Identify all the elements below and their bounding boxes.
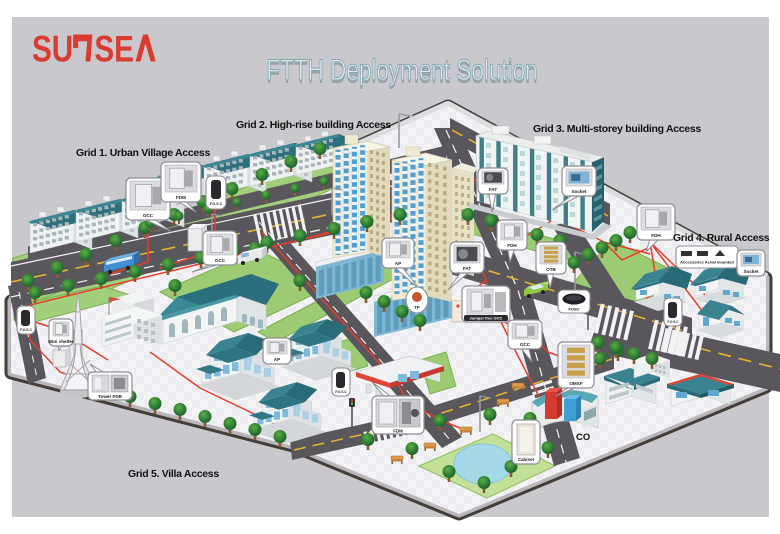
svg-text:FAT: FAT: [489, 187, 498, 192]
svg-text:Jumper free OCC: Jumper free OCC: [470, 316, 503, 321]
svg-text:Cabinet: Cabinet: [518, 457, 535, 462]
svg-text:OCC: OCC: [520, 342, 531, 347]
svg-text:Accessories Aerial mounted: Accessories Aerial mounted: [680, 260, 734, 265]
svg-text:OCC: OCC: [215, 258, 226, 263]
svg-text:FOSC: FOSC: [568, 307, 579, 312]
svg-text:Grid 1. Urban Village Access: Grid 1. Urban Village Access: [76, 147, 210, 159]
svg-text:CO: CO: [576, 432, 590, 443]
svg-text:OTB: OTB: [546, 267, 556, 272]
svg-text:Socket: Socket: [743, 269, 759, 274]
svg-text:Grid 4. Rural Access: Grid 4. Rural Access: [673, 232, 770, 244]
svg-text:Socket: Socket: [571, 189, 587, 194]
svg-text:SE: SE: [94, 28, 134, 70]
svg-text:FDH: FDH: [651, 233, 661, 238]
svg-text:SU: SU: [32, 28, 73, 70]
svg-text:Tower FDB: Tower FDB: [98, 394, 123, 399]
svg-text:Grid 2. High-rise building Acc: Grid 2. High-rise building Access: [236, 119, 391, 131]
svg-text:F.O.S.C: F.O.S.C: [20, 328, 32, 332]
svg-text:F.O.S.C: F.O.S.C: [210, 202, 223, 206]
svg-text:AP: AP: [395, 261, 401, 266]
svg-text:AP: AP: [274, 357, 280, 362]
svg-text:Grid 3. Multi-storey building: Grid 3. Multi-storey building Access: [533, 123, 701, 135]
svg-text:FTTH Deployment Solution: FTTH Deployment Solution: [266, 53, 537, 87]
svg-text:FDM: FDM: [176, 195, 186, 200]
svg-text:FDM: FDM: [393, 429, 403, 434]
svg-text:TP: TP: [414, 305, 420, 310]
svg-text:F.O.S.C: F.O.S.C: [667, 320, 679, 324]
svg-text:FDH: FDH: [507, 243, 517, 248]
svg-text:OCC: OCC: [143, 213, 154, 218]
svg-text:OMXF: OMXF: [569, 381, 582, 386]
svg-text:Grid 5. Villa Access: Grid 5. Villa Access: [128, 468, 219, 480]
svg-text:Mini shelter: Mini shelter: [48, 339, 74, 344]
svg-text:FAT: FAT: [463, 266, 472, 271]
svg-text:F.O.S.C: F.O.S.C: [335, 390, 347, 394]
